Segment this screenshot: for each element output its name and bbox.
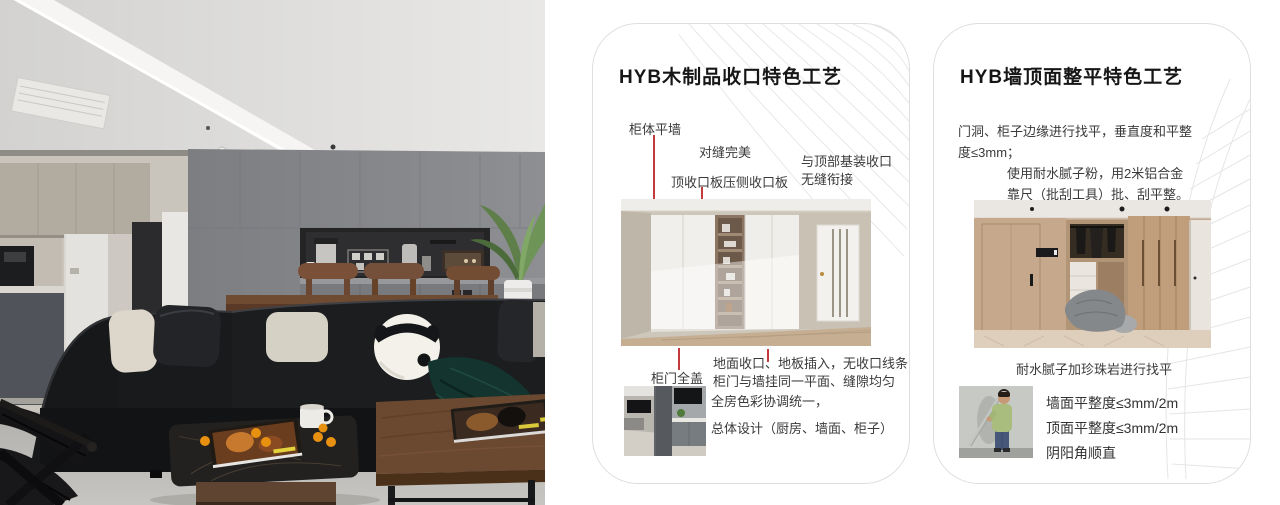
ceiling — [0, 0, 545, 174]
beige-pillow-edge — [533, 302, 545, 357]
dark-door — [132, 222, 162, 314]
downlight — [206, 126, 210, 130]
dining-chair — [446, 266, 500, 280]
living-room-photo — [0, 0, 545, 505]
card-wall-ceiling-leveling-craft: HYB墙顶面整平特色工艺 门洞、柜子边缘进行找平，垂直度和平整 度≤3mm； 使… — [933, 23, 1251, 484]
upper-cabinets — [0, 163, 150, 237]
para-leveling-edges: 门洞、柜子边缘进行找平，垂直度和平整 度≤3mm； — [958, 121, 1192, 163]
label-full-cover-door: 柜门全盖 — [651, 368, 703, 387]
dining-chair — [298, 263, 358, 279]
card1-title: HYB木制品收口特色工艺 — [619, 62, 842, 89]
card2-title: HYB墙顶面整平特色工艺 — [960, 62, 1183, 89]
closet-room-image — [974, 200, 1211, 348]
countertop — [0, 286, 64, 293]
para-putty-ruler: 使用耐水腻子粉，用2米铝合金 靠尺（批刮工具）批、刮平整。 — [1007, 163, 1189, 205]
worker-thumbnail-image — [959, 386, 1033, 458]
card-wood-finish-craft: HYB木制品收口特色工艺 柜体平墙 对缝完美 顶收口板压侧收口板 与顶部基装收口… — [592, 23, 910, 484]
label-top-joint: 与顶部基装收口 无缝衔接 — [801, 153, 892, 189]
caption-pearlite-leveling: 耐水腻子加珍珠岩进行找平 — [1016, 359, 1172, 378]
spec-ceiling-flatness: 顶面平整度≤3mm/2m — [1046, 416, 1178, 441]
cream-pillow — [266, 312, 328, 362]
cream-pillow — [108, 308, 158, 373]
note-floor-joint: 地面收口、地板插入，无收口线条 柜门与墙挂同一平面、缝隙均匀 — [713, 355, 908, 391]
label-cabinet-flush-wall: 柜体平墙 — [629, 119, 681, 138]
label-perfect-seam: 对缝完美 — [699, 142, 751, 161]
downlight — [331, 145, 336, 150]
label-top-closing-board: 顶收口板压侧收口板 — [671, 172, 788, 191]
wardrobe-render-image — [621, 199, 871, 346]
kitchen-thumbnail-image — [624, 386, 706, 456]
page: HYB木制品收口特色工艺 柜体平墙 对缝完美 顶收口板压侧收口板 与顶部基装收口… — [0, 0, 1280, 505]
spec-list: 墙面平整度≤3mm/2m 顶面平整度≤3mm/2m 阴阳角顺直 — [1046, 391, 1178, 466]
note-color-scheme: 全房色彩协调统一， 总体设计（厨房、墙面、柜子） — [711, 388, 893, 442]
leader-line-full-cover — [678, 348, 680, 370]
dining-chair — [364, 263, 424, 279]
living-room-scene — [0, 0, 545, 505]
spec-corner-straightness: 阴阳角顺直 — [1046, 441, 1178, 466]
spec-wall-flatness: 墙面平整度≤3mm/2m — [1046, 391, 1178, 416]
